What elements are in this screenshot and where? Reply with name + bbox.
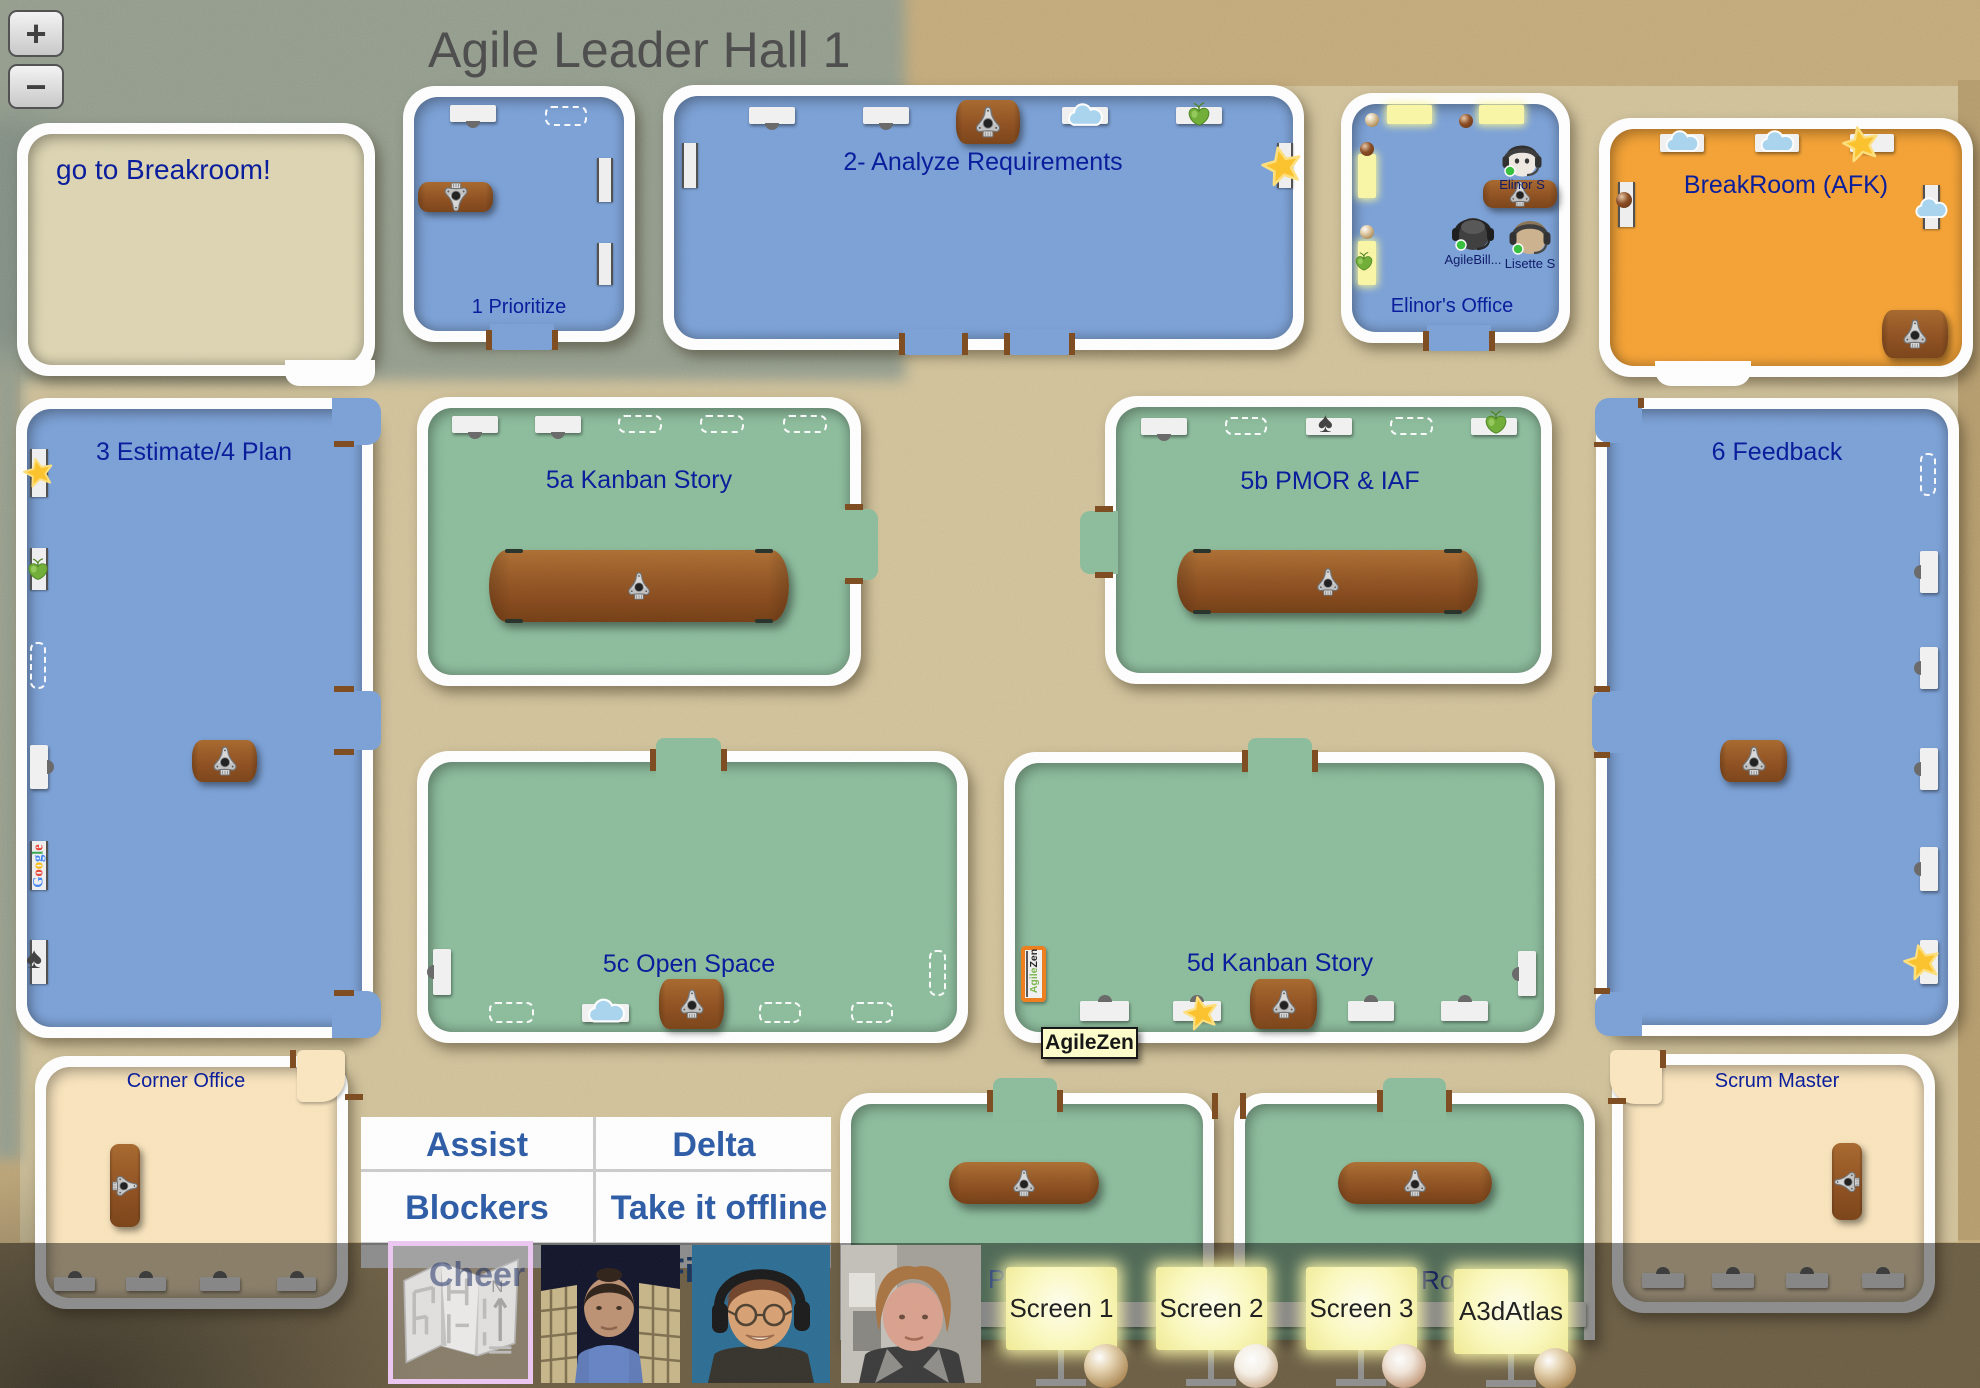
svg-text:Lisette S: Lisette S	[1505, 256, 1556, 271]
svg-text:AgileBill...: AgileBill...	[1444, 252, 1501, 267]
svg-text:Elinor S: Elinor S	[1499, 177, 1545, 192]
